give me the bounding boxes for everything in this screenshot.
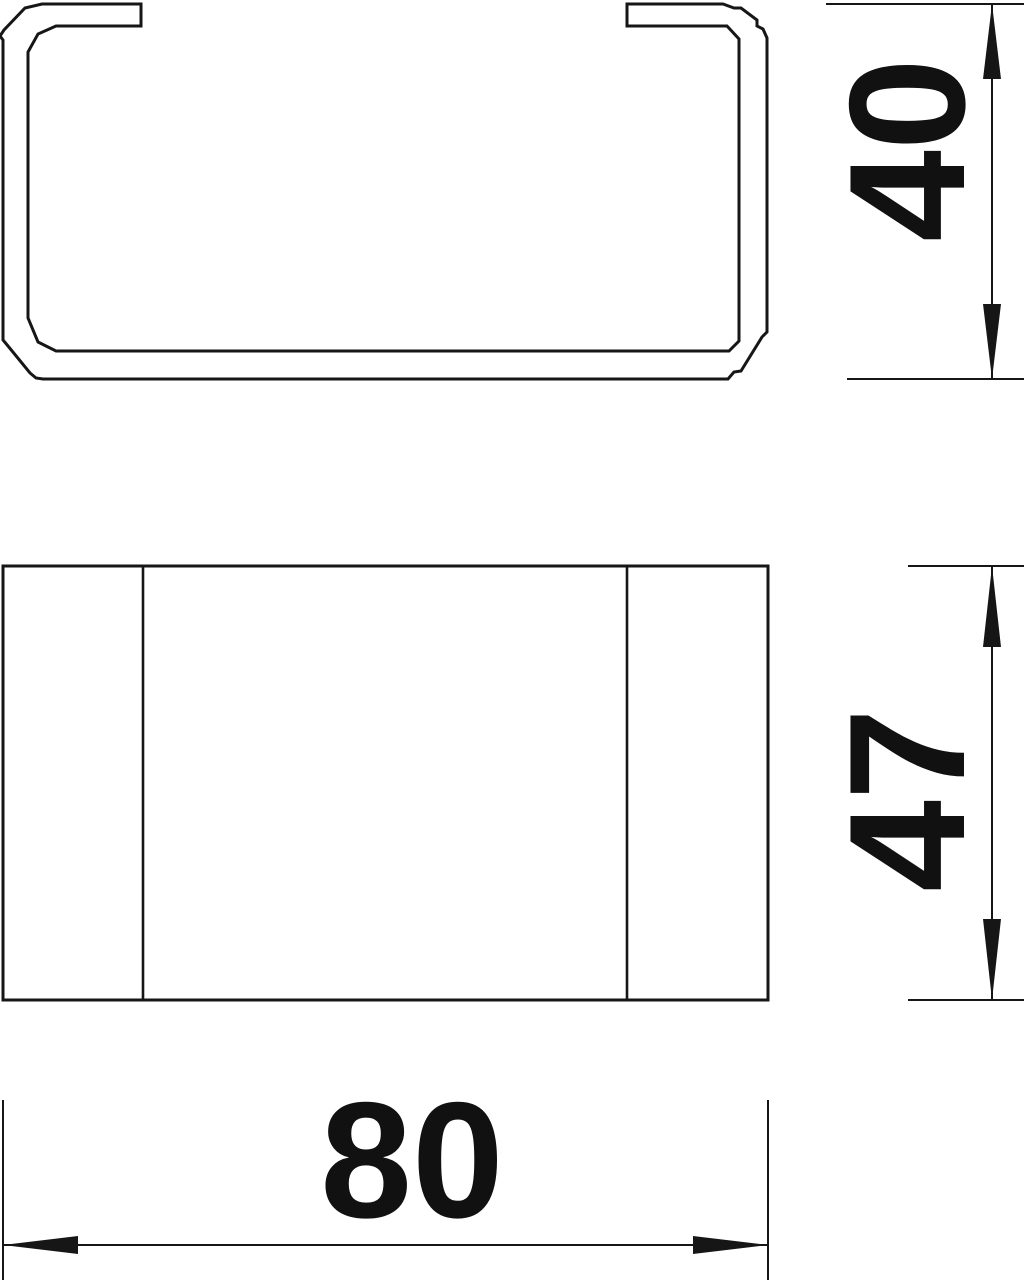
dim47-arrow-down-icon <box>983 919 1001 1000</box>
dim80-arrow-left-icon <box>3 1236 78 1254</box>
channel-profile-outline <box>0 4 767 379</box>
dim47-value-label: 47 <box>815 708 999 892</box>
dim47-arrow-up-icon <box>983 566 1001 647</box>
dimension-height-40: 40 <box>815 4 1024 379</box>
view-end-piece-front <box>3 566 768 1000</box>
dim80-value-label: 80 <box>320 1068 504 1252</box>
dimension-depth-47: 47 <box>815 566 1024 1000</box>
dimension-drawing-canvas: 40 47 80 <box>0 0 1024 1280</box>
technical-drawing-page: 40 47 80 <box>0 0 1024 1280</box>
dim40-arrow-down-icon <box>983 304 1001 379</box>
view-channel-cross-section <box>0 4 767 379</box>
front-view-outline <box>3 566 768 1000</box>
dim40-value-label: 40 <box>815 58 999 242</box>
dimension-width-80: 80 <box>3 1068 768 1280</box>
dim80-arrow-right-icon <box>693 1236 768 1254</box>
